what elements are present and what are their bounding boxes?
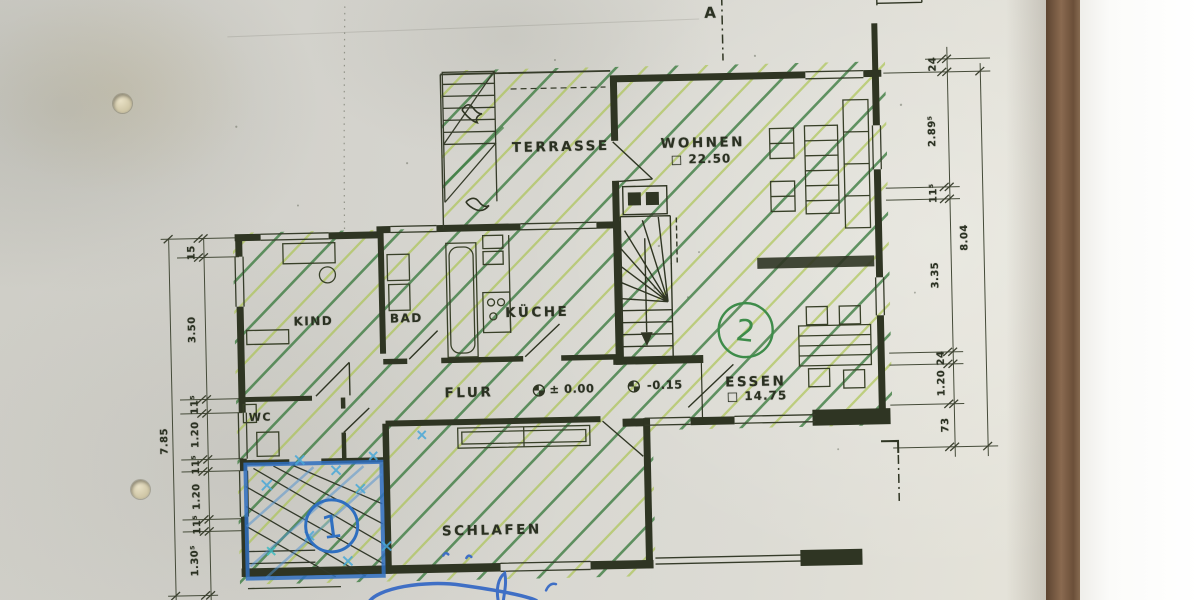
dim-right-4: 24 [936,350,947,365]
room-label-kind: KIND [293,314,333,329]
dim-right-3: 3.35 [930,262,942,289]
dim-left-overall: 7.85 [159,428,171,455]
dim-right-6: 73 [940,417,951,432]
level-ground: ± 0.00 [549,381,594,396]
room-label-wohnen: WOHNEN [660,134,745,152]
floor-plan-photo: 2 1 TERRASSE WOHNEN □ 22.50 KÜCHE BAD KI… [0,0,1200,600]
dim-right-0: 24 [927,57,938,72]
section-marker-a: A [704,4,716,22]
dim-left-6: 11⁵ [192,515,203,535]
blue-circle-number: 1 [319,507,344,547]
dim-right-2: 11⁵ [928,183,939,203]
room-label-wc: WC [249,411,272,424]
room-label-kueche: KÜCHE [505,304,569,321]
dim-left-3: 1.20 [190,421,202,448]
dim-left-0: 15 [186,245,197,260]
room-area-essen: □ 14.75 [727,388,788,403]
dim-right-5: 1.20 [936,370,948,397]
room-label-bad: BAD [390,311,423,326]
level-lower: -0.15 [647,377,683,392]
dim-right-overall: 8.04 [959,224,971,251]
dim-right-1: 2.89⁵ [927,115,939,147]
room-label-terrasse: TERRASSE [512,138,610,156]
dim-left-2: 11⁵ [189,395,200,415]
room-area-wohnen: □ 22.50 [671,151,732,166]
room-label-flur: FLUR [444,384,493,401]
dim-left-1: 3.50 [187,316,199,343]
room-label-schlafen: SCHLAFEN [442,521,542,539]
dim-left-4: 11⁵ [191,455,202,475]
dim-left-5: 1.20 [191,483,203,510]
circled-digits: 2 1 [0,0,1200,600]
floor-plan-drawing: 2 1 TERRASSE WOHNEN □ 22.50 KÜCHE BAD KI… [0,0,1200,600]
dim-left-7: 1.30⁵ [190,545,202,577]
green-circle-number: 2 [734,313,757,350]
